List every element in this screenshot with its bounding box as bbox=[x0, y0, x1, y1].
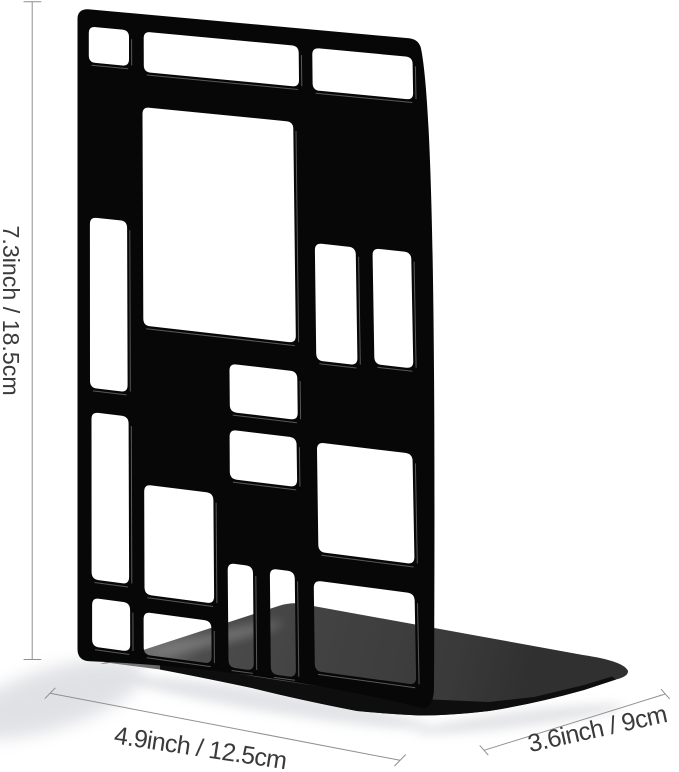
svg-text:7.3inch / 18.5cm: 7.3inch / 18.5cm bbox=[0, 226, 24, 396]
